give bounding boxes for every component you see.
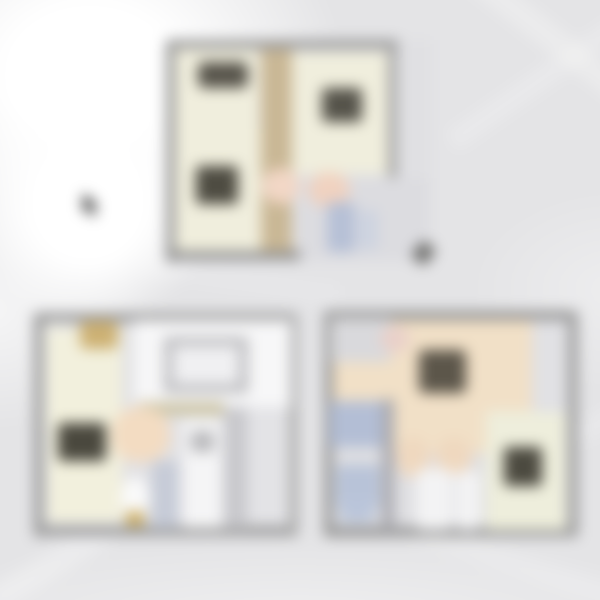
kitchen-block-3 [340, 497, 374, 522]
top-right-area [534, 320, 568, 412]
wall-right [568, 311, 578, 537]
floor-plan-bottom-right[interactable] [0, 0, 600, 600]
kitchen-block-1 [330, 401, 382, 447]
cursor-arrow-icon [82, 193, 102, 219]
screenshot-canvas [0, 0, 600, 600]
kitchen-divider [382, 399, 394, 530]
bedroom-table [504, 447, 542, 486]
bath-fixture-2 [456, 471, 480, 530]
entry-pink-mark [380, 326, 410, 352]
big-table [419, 350, 466, 393]
blur-layer [0, 0, 600, 600]
mouse-cursor-icon [82, 193, 102, 219]
bath-fixture-1 [416, 469, 452, 530]
plans-world [0, 0, 600, 600]
